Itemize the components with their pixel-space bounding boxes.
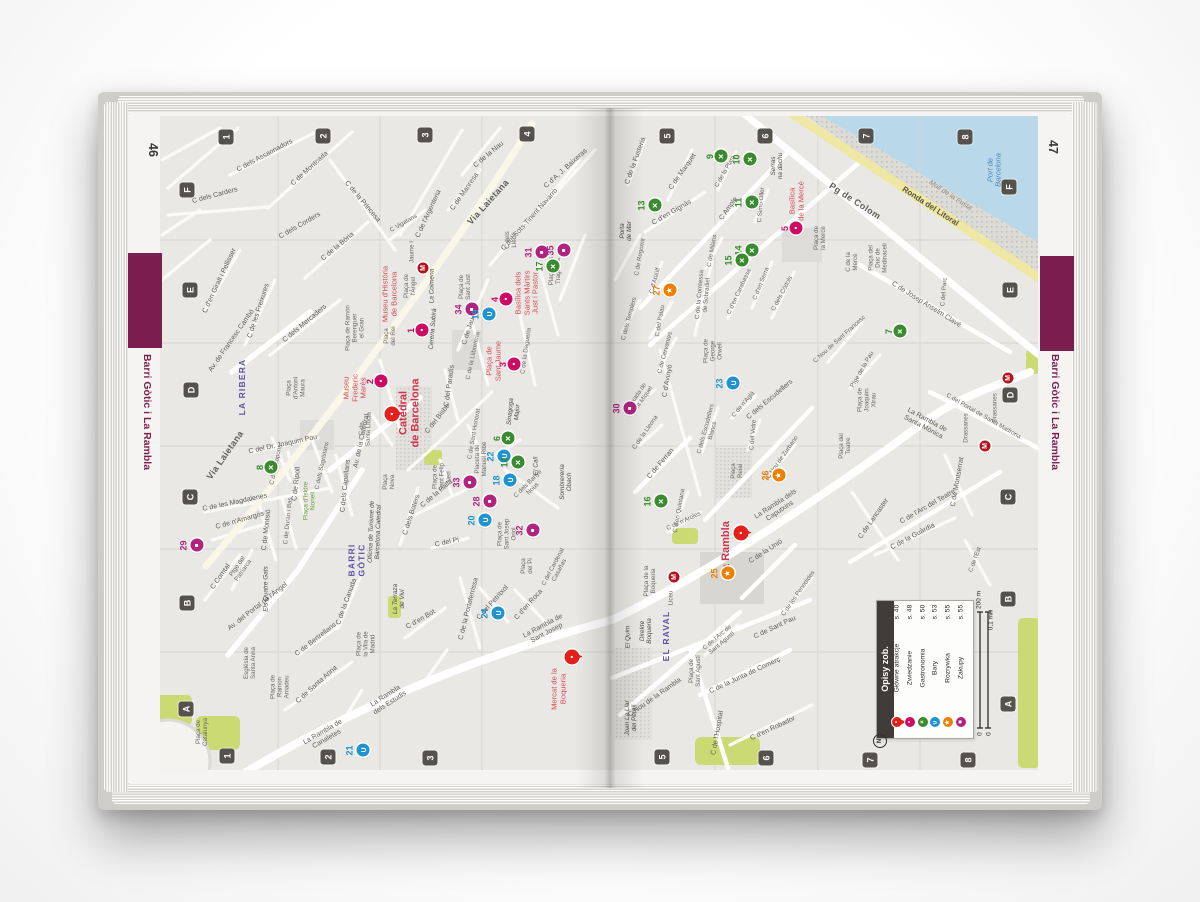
poi-number: 5 xyxy=(780,225,790,230)
zakupy-marker-35: ■35 xyxy=(558,244,571,257)
grid-badge-2: 2 xyxy=(321,750,336,765)
metro-icon-glyph: M xyxy=(982,443,989,449)
gastronomia-marker-8: ×8 xyxy=(265,461,278,474)
map-label: Plaça de la Vila de Madrid xyxy=(357,631,378,656)
zwiedzanie-marker-glyph: • xyxy=(510,363,519,366)
metro-icon-glyph: M xyxy=(420,265,427,271)
map-label: Plaça de Ramon Amadeu xyxy=(271,675,292,699)
poi-number: 21 xyxy=(344,745,354,755)
grid-badge-4: 4 xyxy=(520,127,535,142)
map-label: Plaça Nova xyxy=(383,474,397,489)
grid-badge-1: 1 xyxy=(219,130,234,145)
grid-badge-5: 5 xyxy=(660,129,675,144)
zakupy-marker-glyph: ■ xyxy=(467,480,473,484)
grid-badge-E: E xyxy=(183,283,198,298)
map-label: Plaça de la Mercè xyxy=(814,226,828,250)
poi-number: 31 xyxy=(523,247,533,257)
legend-label-b: Bary xyxy=(932,661,939,675)
gastronomia-marker-15: ×15 xyxy=(736,254,749,267)
map-label: Port de Barcelona xyxy=(987,153,1004,187)
map-label: 0 xyxy=(985,732,992,736)
legend-label-f: Gastronomia xyxy=(919,649,926,688)
legend-ref-e: s. 55 xyxy=(945,605,952,620)
gastronomia-marker-17: ×17 xyxy=(547,260,560,273)
grid-badge-E: E xyxy=(1003,283,1018,298)
poi-number: 19 xyxy=(470,309,480,319)
grid-badge-D: D xyxy=(184,383,199,398)
grid-badge-A: A xyxy=(1001,697,1016,712)
poi-number: 33 xyxy=(451,477,461,487)
book-photo-scene: 46 47 Barri Gòtic i La Rambla Barri Gòti… xyxy=(0,0,1200,902)
map-label: Oficina de Turisme de Barcelona Catedral xyxy=(367,501,384,564)
zwiedzanie-marker-glyph: • xyxy=(792,227,801,230)
gastronomia-marker-glyph: × xyxy=(503,435,513,440)
pin-tail xyxy=(577,654,583,660)
gastronomia-marker-16: ×16 xyxy=(655,495,668,508)
gastronomia-marker-glyph: × xyxy=(747,199,757,204)
legend-label-e: Rozrywka xyxy=(945,653,952,683)
legend-title: Opisy zob. xyxy=(880,646,890,692)
poi-number: 2 xyxy=(365,378,375,383)
map-label: Basílica dels Sants Màrtirs Just i Pasto… xyxy=(514,271,540,316)
glowne-atrakcje-pin: • xyxy=(385,407,400,422)
grid-badge-F: F xyxy=(180,183,195,198)
page-number-left: 46 xyxy=(146,143,160,157)
map-label: Plaça de Ramón Berenguer el Gran xyxy=(346,305,367,351)
poi-number: 1 xyxy=(406,327,416,332)
map-label: Plaça de Sant Just xyxy=(459,274,473,300)
map-label: C dels Lledó xyxy=(505,231,519,249)
chapter-title-right: Barri Gòtic i La Rambla xyxy=(1049,354,1061,470)
gastronomia-marker-glyph: × xyxy=(747,247,757,252)
bary-marker-23: ∪23 xyxy=(727,377,740,390)
map-label: Jaume I xyxy=(410,241,417,263)
legend-ref-s: s. 48 xyxy=(906,605,913,620)
grid-badge-7: 7 xyxy=(859,129,874,144)
grid-badge-6: 6 xyxy=(758,129,773,144)
legend-ref-z: s. 55 xyxy=(958,605,965,620)
poi-number: 13 xyxy=(636,200,646,210)
bary-marker-19: ∪19 xyxy=(483,308,496,321)
map-label: Plaça del Pi xyxy=(521,558,535,573)
grid-badge-B: B xyxy=(180,596,195,611)
poi-number: 11 xyxy=(734,197,744,207)
bary-marker-18: ∪18 xyxy=(504,474,517,487)
rozrywka-marker-27: ★27 xyxy=(664,284,677,297)
map-label: Plaça de Sant Felip Neri xyxy=(433,463,454,491)
metro-icon: M xyxy=(669,572,680,583)
grid-badge-3: 3 xyxy=(418,128,433,143)
map-label: Mercat de la Boqueria xyxy=(551,668,568,710)
poi-number: 25 xyxy=(709,568,719,578)
map-label: Museu Frederic Marès xyxy=(342,374,368,402)
poi-number: 15 xyxy=(723,255,733,265)
grid-badge-B: B xyxy=(1001,592,1016,607)
glowne-atrakcje-pin-glyph: • xyxy=(737,532,746,535)
compass-north-icon: N xyxy=(873,734,887,748)
grid-badge-C: C xyxy=(183,490,198,505)
gastronomia-marker-glyph: × xyxy=(513,459,523,464)
poi-number: 34 xyxy=(453,304,463,314)
zakupy-marker-glyph: ■ xyxy=(958,720,964,724)
map-label: Sombrerería Obach xyxy=(559,464,573,500)
metro-icon: M xyxy=(980,441,991,452)
glowne-atrakcje-pin-glyph: • xyxy=(568,656,577,659)
rozrywka-marker-glyph: ★ xyxy=(775,472,783,478)
grid-badge-F: F xyxy=(1002,180,1017,195)
poi-number: 17 xyxy=(534,261,544,271)
rozrywka-marker-glyph: ★ xyxy=(724,570,732,576)
poi-number: 9 xyxy=(705,153,715,158)
zwiedzanie-marker-glyph: • xyxy=(907,721,913,723)
poi-number: 20 xyxy=(466,515,476,525)
map-label: 200 m xyxy=(975,591,982,609)
legend-ref-b: s. 53 xyxy=(932,605,939,620)
gastronomia-marker-14: ×14 xyxy=(746,244,759,257)
poi-number: 35 xyxy=(545,245,555,255)
map-label: El Quim xyxy=(624,626,631,649)
zakupy-marker-glyph: ■ xyxy=(194,543,200,547)
map-label: Plaça de Sant Agustí xyxy=(689,655,703,687)
bary-marker-glyph: ∪ xyxy=(493,610,502,616)
poi-number: 29 xyxy=(178,540,188,550)
grid-badge-D: D xyxy=(1003,388,1018,403)
poi-number: 18 xyxy=(491,475,501,485)
zakupy-marker: ■ xyxy=(956,717,966,727)
rozrywka-marker-26: ★26 xyxy=(773,469,786,482)
legend-ref-a: s. 40 xyxy=(894,605,901,620)
map-label: Plaça de Catalunya xyxy=(196,718,210,746)
metro-icon: M xyxy=(418,263,429,274)
gastronomia-marker-glyph: × xyxy=(548,263,558,268)
gastronomia-marker-glyph: × xyxy=(895,328,905,333)
grid-badge-3: 3 xyxy=(423,751,438,766)
bary-marker-glyph: ∪ xyxy=(480,517,489,523)
zwiedzanie-marker-glyph: • xyxy=(502,298,511,301)
map-label: Serras na dachu xyxy=(770,153,784,179)
map-label: Plaça de la Boqueria xyxy=(644,566,658,597)
poi-number: 16 xyxy=(642,496,652,506)
map-label: EL RAVAL xyxy=(662,611,672,662)
poi-number: 24 xyxy=(479,608,489,618)
map-label: Sinagoga Major xyxy=(506,398,523,426)
poi-number: 6 xyxy=(492,435,502,440)
gastronomia-marker-glyph: × xyxy=(716,153,726,158)
map-label: Plaça d'Isidre Nonell xyxy=(303,482,318,521)
map-label: Drassanes xyxy=(993,393,1000,423)
grid-badge-5: 5 xyxy=(655,750,670,765)
chapter-tab-left xyxy=(128,253,162,348)
zakupy-marker-glyph: ■ xyxy=(561,248,567,252)
zwiedzanie-marker-2: •2 xyxy=(375,375,388,388)
map-label: Joan La Llar del Pernil xyxy=(624,700,638,735)
zwiedzanie-marker-glyph: • xyxy=(418,329,427,332)
map-label: La Colmena xyxy=(428,269,435,303)
zwiedzanie-marker-4: •4 xyxy=(500,293,513,306)
map-label: Plaça Reial xyxy=(731,463,745,478)
rozrywka-marker-glyph: ★ xyxy=(945,719,952,724)
metro-icon: M xyxy=(1003,373,1014,384)
map-label: La Terraza de Vivi xyxy=(392,584,406,614)
poi-number: 7 xyxy=(884,328,894,333)
poi-number: 12 xyxy=(499,457,509,467)
map-label: Direkte Boqueria xyxy=(639,618,653,644)
bary-marker-21: ∪21 xyxy=(357,744,370,757)
zakupy-marker-32: ■32 xyxy=(527,524,540,537)
poi-number: 10 xyxy=(731,154,741,164)
poi-number: 30 xyxy=(611,403,621,413)
map-label: Museu d'Història de Barcelona xyxy=(382,266,399,322)
grid-badge-C: C xyxy=(1001,490,1016,505)
zwiedzanie-marker-glyph: • xyxy=(377,380,386,383)
gastronomia-marker-11: ×11 xyxy=(746,196,759,209)
bary-marker: ∪ xyxy=(930,717,940,727)
grid-badge-8: 8 xyxy=(961,753,976,768)
legend-label-a: Główne atrakcje xyxy=(894,644,901,693)
map-label: Liceu xyxy=(669,591,676,606)
poi-number: 32 xyxy=(514,525,524,535)
poi-number: 8 xyxy=(255,464,265,469)
chapter-title-left: Barri Gòtic i La Rambla xyxy=(141,354,153,470)
map-label: 0,1 mili xyxy=(987,610,994,631)
gastronomia-marker-glyph: × xyxy=(737,257,747,262)
zwiedzanie-marker: • xyxy=(905,717,915,727)
grid-badge-8: 8 xyxy=(958,130,973,145)
bary-marker-glyph: ∪ xyxy=(358,747,367,753)
map-label: Drassanes xyxy=(964,413,971,443)
map-label: Plaça de l'Àngel xyxy=(404,274,418,298)
legend-label-s: Zwiedzanie xyxy=(906,651,913,685)
legend-label-z: Zakupy xyxy=(958,657,965,679)
map-label: LA RIBERA xyxy=(238,359,248,416)
map-label: C de la Mercè xyxy=(846,252,860,272)
poi-number: 22 xyxy=(485,451,495,461)
gastronomia-marker-7: ×7 xyxy=(894,325,907,338)
map-artwork xyxy=(0,0,1200,902)
rozrywka-marker: ★ xyxy=(943,717,953,727)
poi-number: 3 xyxy=(498,361,508,366)
glowne-atrakcje-pin: • xyxy=(734,526,749,541)
gastronomia-marker: × xyxy=(918,717,928,727)
map-label: BARRI GÒTIC xyxy=(347,544,366,577)
grid-badge-A: A xyxy=(179,702,194,717)
rozrywka-marker-25: ★25 xyxy=(722,567,735,580)
pin-tail xyxy=(746,530,752,536)
map-label: Plaça de George Orwell xyxy=(704,339,725,363)
bary-marker-glyph: ∪ xyxy=(484,311,493,317)
gastronomia-marker-glyph: × xyxy=(656,498,666,503)
map-label: Plaça d'Antoni Maura xyxy=(287,377,308,399)
poi-number: 4 xyxy=(490,296,500,301)
glowne-atrakcje-pin-glyph: • xyxy=(388,413,397,416)
gastronomia-marker-6: ×6 xyxy=(502,432,515,445)
gastronomia-marker-13: ×13 xyxy=(649,199,662,212)
metro-icon-glyph: M xyxy=(671,574,678,580)
pin-tail xyxy=(397,411,403,417)
gastronomia-marker-glyph: × xyxy=(650,202,660,207)
bary-marker-20: ∪20 xyxy=(479,514,492,527)
page-number-right: 47 xyxy=(1046,140,1060,154)
map-label: Porta de Mar xyxy=(619,221,633,241)
gastronomia-marker-10: ×10 xyxy=(744,153,757,166)
legend-ref-f: s. 50 xyxy=(919,605,926,620)
grid-badge-7: 7 xyxy=(863,753,878,768)
map-label: Els Quatre Gats xyxy=(262,566,269,611)
glowne-atrakcje-pin: • xyxy=(892,717,902,727)
glowne-atrakcje-pin: • xyxy=(565,650,580,665)
zakupy-marker-glyph: ■ xyxy=(539,250,545,254)
bary-marker-glyph: ∪ xyxy=(505,477,514,483)
zwiedzanie-marker-3: •3 xyxy=(508,358,521,371)
gastronomia-marker-9: ×9 xyxy=(715,150,728,163)
chapter-tab-right xyxy=(1040,256,1074,351)
zakupy-marker-29: ■29 xyxy=(191,539,204,552)
map-label: El Call xyxy=(532,457,539,475)
bary-marker-24: ∪24 xyxy=(492,607,505,620)
grid-badge-6: 6 xyxy=(759,751,774,766)
map-label: Església de Santa Anna xyxy=(244,647,258,679)
zakupy-marker-glyph: ■ xyxy=(627,406,633,410)
gastronomia-marker-glyph: × xyxy=(745,156,755,161)
poi-number: 26 xyxy=(760,470,770,480)
grid-badge-1: 1 xyxy=(220,749,235,764)
zwiedzanie-marker-1: •1 xyxy=(416,324,429,337)
map-label: 0 xyxy=(976,732,983,736)
map-label: Basílica de la Mercè xyxy=(789,181,806,221)
rozrywka-marker-glyph: ★ xyxy=(666,287,674,293)
gastronomia-marker-glyph: × xyxy=(266,464,276,469)
poi-number: 27 xyxy=(651,285,661,295)
zakupy-marker-28: ■28 xyxy=(484,495,497,508)
map-label: Plaça del Duc de Medinaceli xyxy=(869,243,890,273)
map-label: Plaça del Rei xyxy=(384,326,398,345)
gastronomia-marker-glyph: × xyxy=(920,720,926,724)
map-label: Plaça de Joaquim Xirau xyxy=(858,388,879,412)
zakupy-marker-30: ■30 xyxy=(624,402,637,415)
zwiedzanie-marker-5: •5 xyxy=(790,222,803,235)
metro-icon-glyph: M xyxy=(1005,375,1012,381)
zakupy-marker-glyph: ■ xyxy=(487,499,493,503)
zakupy-marker-33: ■33 xyxy=(464,476,477,489)
map-label: Plaça del Teatre xyxy=(839,433,853,458)
poi-number: 23 xyxy=(714,378,724,388)
gastronomia-marker-12: ×12 xyxy=(512,456,525,469)
grid-badge-2: 2 xyxy=(316,129,331,144)
bary-marker-glyph: ∪ xyxy=(932,720,939,724)
zakupy-marker-glyph: ■ xyxy=(530,528,536,532)
poi-number: 28 xyxy=(471,496,481,506)
bary-marker-glyph: ∪ xyxy=(728,380,737,386)
